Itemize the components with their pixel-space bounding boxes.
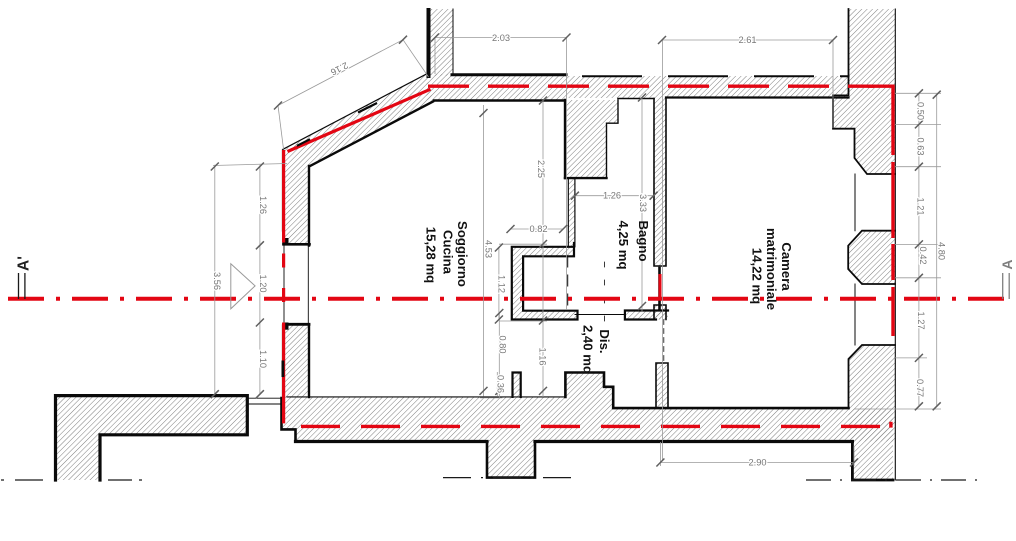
svg-text:1.10: 1.10: [258, 350, 268, 368]
svg-text:0.82: 0.82: [529, 224, 547, 234]
svg-text:1.26: 1.26: [603, 191, 621, 201]
svg-text:1.21: 1.21: [916, 197, 926, 215]
svg-text:1.27: 1.27: [916, 311, 926, 329]
svg-text:A': A': [16, 256, 33, 271]
svg-text:A: A: [999, 259, 1015, 269]
svg-text:0.63: 0.63: [916, 137, 926, 155]
svg-text:3.33: 3.33: [638, 194, 648, 212]
svg-text:2.03: 2.03: [492, 33, 510, 43]
svg-text:0.50: 0.50: [916, 102, 926, 120]
svg-text:1.12: 1.12: [497, 275, 507, 293]
svg-text:1.20: 1.20: [258, 274, 268, 292]
svg-text:0.80: 0.80: [498, 335, 508, 353]
svg-text:0.42: 0.42: [918, 246, 928, 264]
svg-text:4.53: 4.53: [484, 240, 494, 258]
svg-text:0.77: 0.77: [915, 379, 925, 397]
svg-text:1.16: 1.16: [538, 347, 548, 365]
svg-text:2.90: 2.90: [748, 458, 766, 468]
svg-text:0.36: 0.36: [496, 375, 506, 393]
svg-text:3.56: 3.56: [212, 272, 222, 290]
svg-text:4.80: 4.80: [937, 242, 947, 260]
svg-text:1.26: 1.26: [258, 196, 268, 214]
svg-text:2.25: 2.25: [536, 160, 546, 178]
svg-text:2.61: 2.61: [738, 35, 756, 45]
